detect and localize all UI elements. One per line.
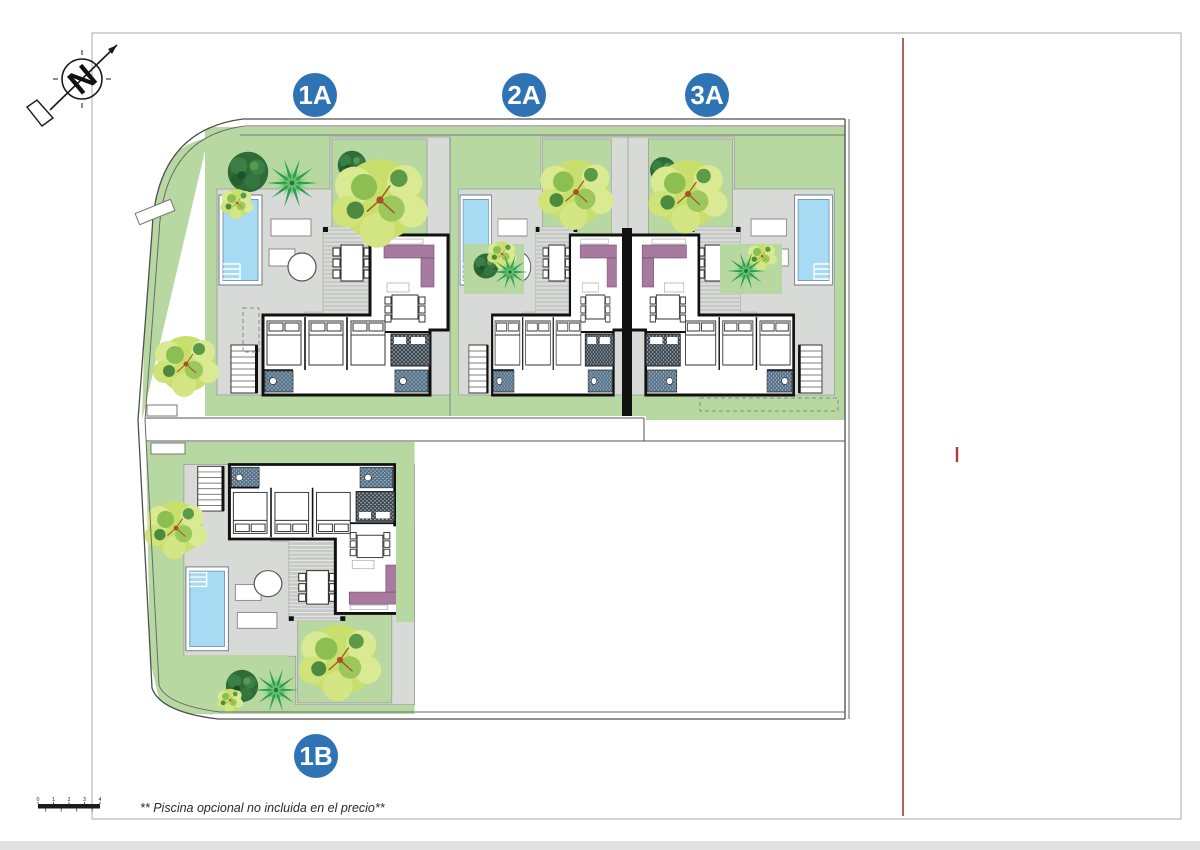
- party-wall: [622, 228, 632, 418]
- plot-label-2a-text: 2A: [507, 80, 540, 110]
- plot-label-2a: 2A: [502, 73, 546, 117]
- scanned-site-plan-page: 1A 2A 3A 1B N 0 1 2 3 4 ** Piscina opcio…: [0, 0, 1200, 850]
- plot-label-1a-text: 1A: [298, 80, 331, 110]
- plot-label-3a-text: 3A: [690, 80, 723, 110]
- plot-label-1b-text: 1B: [299, 741, 332, 771]
- scan-edge-shadow: [0, 841, 1200, 850]
- lawn-1b-east-band: [396, 442, 414, 622]
- footnote-text: ** Piscina opcional no incluida en el pr…: [140, 801, 386, 815]
- site-plan-drawing: 1A 2A 3A 1B N 0 1 2 3 4 ** Piscina opcio…: [0, 0, 1200, 850]
- plot-label-1a: 1A: [293, 73, 337, 117]
- plot-label-1b: 1B: [294, 734, 338, 778]
- plot-label-3a: 3A: [685, 73, 729, 117]
